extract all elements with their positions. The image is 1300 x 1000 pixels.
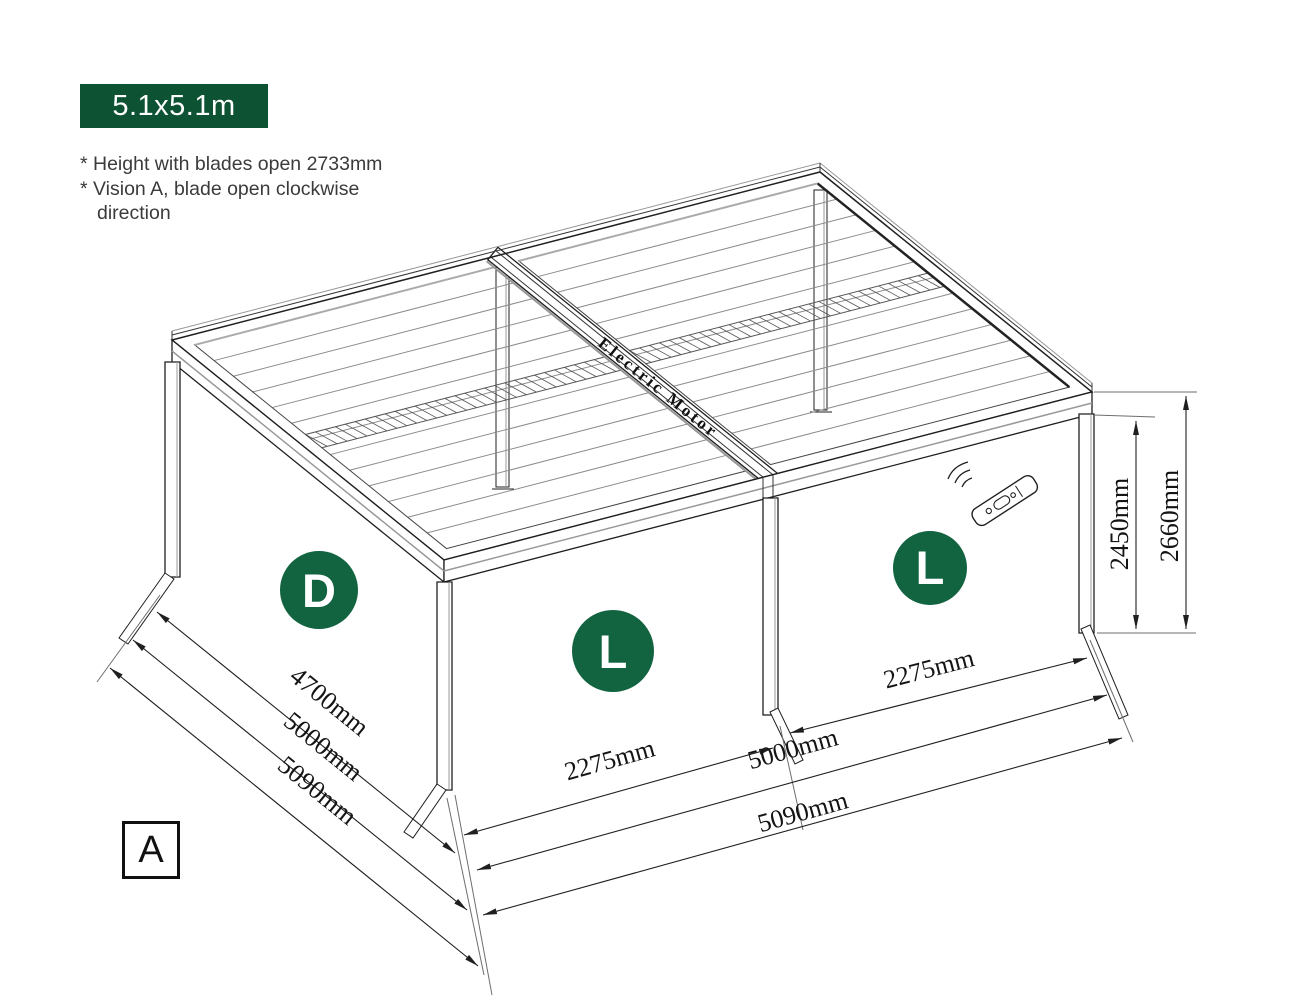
post-foot <box>119 573 174 644</box>
dim-front-right-bay: 2275mm <box>880 643 977 694</box>
marker-letter-front-left: L <box>599 625 628 678</box>
remote-seam <box>1015 486 1022 497</box>
marker-letter-left: D <box>302 564 336 617</box>
signal-wave-icon <box>955 470 970 483</box>
pergola-technical-drawing: Electric Motor D L L 4700mm <box>0 0 1300 1000</box>
front-middle-post <box>763 498 778 715</box>
page: 5.1x5.1m * Height with blades open 2733m… <box>0 0 1300 1000</box>
remote-screen <box>992 494 1011 511</box>
dim-overall-height: 2660mm <box>1155 470 1184 562</box>
dim-post-height: 2450mm <box>1105 478 1134 570</box>
dim-front-inner-width: 5000mm <box>744 722 841 775</box>
dim-front-overall-width: 5090mm <box>754 785 851 838</box>
remote-button <box>985 507 992 514</box>
remote-body <box>969 473 1040 528</box>
remote-button <box>1010 492 1016 498</box>
signal-wave-icon <box>962 478 972 487</box>
post-foot <box>404 784 446 838</box>
front-left-post <box>437 582 452 790</box>
marker-letter-front-right: L <box>916 541 945 594</box>
remote-control-icon <box>948 462 1040 528</box>
pergola-structure <box>119 163 1128 838</box>
extension-line <box>1094 415 1155 417</box>
back-middle-post <box>496 266 509 487</box>
extension-line <box>97 595 160 682</box>
right-corner-post <box>1079 414 1094 633</box>
signal-wave-icon <box>948 462 968 479</box>
post-foot <box>1081 625 1128 719</box>
extension-line <box>447 798 484 975</box>
dim-front-left-bay: 2275mm <box>561 733 658 786</box>
left-corner-post <box>165 362 180 577</box>
extension-line <box>1090 640 1133 742</box>
extension-line <box>455 795 492 995</box>
area-markers: D L L <box>280 531 967 692</box>
